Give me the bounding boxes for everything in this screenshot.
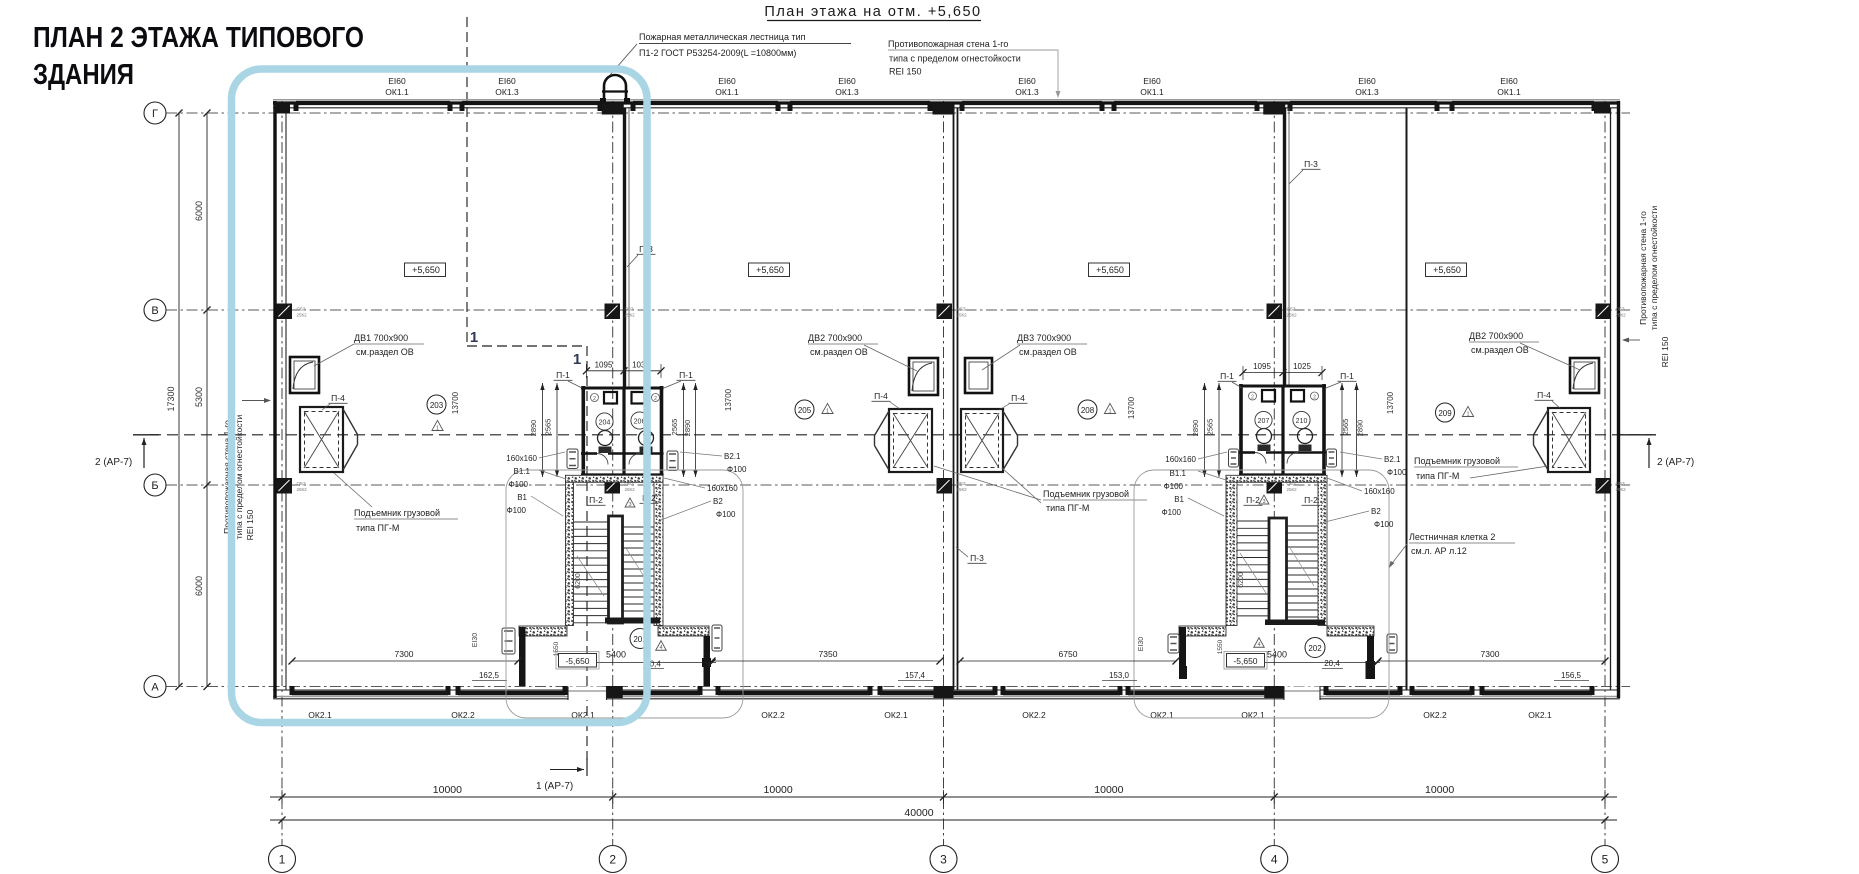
- svg-text:В1.1: В1.1: [514, 467, 531, 476]
- svg-text:1: 1: [470, 329, 478, 346]
- svg-text:Подъемник грузовой: Подъемник грузовой: [1043, 489, 1129, 499]
- svg-text:ОК2.1: ОК2.1: [1528, 710, 1552, 720]
- svg-text:ОК1.1: ОК1.1: [1140, 87, 1164, 97]
- svg-text:5300: 5300: [194, 387, 204, 407]
- svg-text:5400: 5400: [1267, 650, 1287, 660]
- svg-text:см.раздел ОВ: см.раздел ОВ: [810, 347, 868, 357]
- svg-text:162,5: 162,5: [479, 671, 500, 680]
- svg-text:типа с пределом огнестойкости: типа с пределом огнестойкости: [889, 54, 1021, 64]
- svg-text:ЗДАНИЯ: ЗДАНИЯ: [33, 59, 134, 91]
- svg-text:2: 2: [593, 396, 596, 402]
- svg-text:ОБЗ: ОБЗ: [297, 481, 306, 486]
- svg-text:25К2: 25К2: [1616, 487, 1627, 492]
- svg-text:Г: Г: [152, 108, 158, 120]
- svg-text:EI60: EI60: [1358, 76, 1376, 86]
- svg-text:В2: В2: [713, 497, 723, 506]
- svg-text:2890: 2890: [683, 420, 692, 437]
- svg-text:В1: В1: [517, 493, 527, 502]
- svg-text:2565: 2565: [544, 419, 553, 436]
- svg-text:П-3: П-3: [970, 553, 984, 563]
- svg-text:ПЛАН 2 ЭТАЖА ТИПОВОГО: ПЛАН 2 ЭТАЖА ТИПОВОГО: [33, 22, 364, 54]
- svg-text:2890: 2890: [529, 420, 538, 437]
- svg-text:П-3: П-3: [1304, 159, 1318, 169]
- svg-text:см.л. АР л.12: см.л. АР л.12: [1411, 546, 1467, 556]
- svg-text:ОБЗ: ОБЗ: [625, 307, 634, 312]
- svg-text:ОБЗ: ОБЗ: [1616, 307, 1625, 312]
- svg-text:ОК2.1: ОК2.1: [571, 710, 595, 720]
- svg-text:ДВ3 700x900: ДВ3 700x900: [1017, 333, 1071, 343]
- svg-text:6200: 6200: [575, 573, 582, 589]
- svg-text:25К2: 25К2: [957, 313, 968, 318]
- svg-text:2: 2: [654, 396, 657, 402]
- svg-text:2: 2: [609, 853, 616, 867]
- svg-text:REI 150: REI 150: [889, 67, 922, 77]
- svg-text:EI60: EI60: [1018, 76, 1036, 86]
- svg-text:160x160: 160x160: [506, 454, 537, 463]
- svg-text:6200: 6200: [1238, 572, 1245, 588]
- svg-text:25К2: 25К2: [297, 313, 308, 318]
- svg-text:+5,650: +5,650: [412, 265, 440, 275]
- svg-text:П-4: П-4: [874, 391, 888, 401]
- svg-text:Лестничная клетка 2: Лестничная клетка 2: [1409, 532, 1495, 542]
- svg-text:25К2: 25К2: [957, 487, 968, 492]
- svg-text:10000: 10000: [764, 784, 793, 796]
- svg-text:2565: 2565: [1341, 419, 1350, 436]
- svg-text:EI60: EI60: [838, 76, 856, 86]
- svg-text:Ф100: Ф100: [1374, 520, 1394, 529]
- svg-text:П-1: П-1: [556, 370, 570, 380]
- svg-text:ЕІ30: ЕІ30: [1138, 637, 1145, 652]
- svg-text:ОБЗ: ОБЗ: [1616, 481, 1625, 486]
- svg-text:210: 210: [1296, 418, 1308, 425]
- svg-text:Пожарная металлическая лестниц: Пожарная металлическая лестница тип: [639, 32, 806, 42]
- svg-text:160x160: 160x160: [1364, 487, 1395, 496]
- svg-text:Б: Б: [151, 480, 158, 492]
- svg-text:13700: 13700: [451, 391, 460, 414]
- svg-text:REI 150: REI 150: [245, 509, 255, 540]
- svg-text:ОК1.3: ОК1.3: [1015, 87, 1039, 97]
- svg-text:156,5: 156,5: [1561, 671, 1582, 680]
- svg-text:6000: 6000: [194, 576, 204, 596]
- svg-text:П-4: П-4: [331, 393, 345, 403]
- svg-text:ОБЗ: ОБЗ: [957, 481, 966, 486]
- svg-text:2890: 2890: [1191, 420, 1200, 437]
- svg-text:204: 204: [599, 420, 611, 427]
- svg-text:25К2: 25К2: [625, 313, 636, 318]
- svg-text:Ф100: Ф100: [509, 480, 529, 489]
- svg-text:ЕІ30: ЕІ30: [472, 633, 479, 648]
- svg-text:Ф100: Ф100: [507, 506, 527, 515]
- svg-text:3: 3: [628, 502, 631, 508]
- svg-text:П-1: П-1: [1340, 371, 1354, 381]
- svg-text:Ф100: Ф100: [716, 510, 736, 519]
- svg-text:40000: 40000: [904, 807, 933, 819]
- svg-text:П-2: П-2: [589, 495, 603, 505]
- svg-text:25К2: 25К2: [1287, 313, 1298, 318]
- svg-text:ОБЗ: ОБЗ: [1287, 307, 1296, 312]
- svg-text:ОК1.3: ОК1.3: [835, 87, 859, 97]
- svg-text:2565: 2565: [1206, 419, 1215, 436]
- svg-text:см.раздел ОВ: см.раздел ОВ: [356, 347, 414, 357]
- svg-text:Противопожарная стена 1-го: Противопожарная стена 1-го: [888, 39, 1008, 49]
- svg-text:+5,650: +5,650: [1096, 265, 1124, 275]
- svg-text:REI 150: REI 150: [1660, 336, 1670, 367]
- svg-text:2890: 2890: [1356, 420, 1365, 437]
- svg-text:10000: 10000: [1425, 784, 1454, 796]
- svg-text:1: 1: [826, 408, 829, 414]
- svg-text:П1-2 ГОСТ Р53254-2009(L =10800: П1-2 ГОСТ Р53254-2009(L =10800мм): [639, 48, 796, 58]
- svg-text:5400: 5400: [606, 650, 626, 660]
- svg-text:1 (АР-7): 1 (АР-7): [536, 781, 573, 792]
- svg-text:ОК2.2: ОК2.2: [761, 710, 785, 720]
- svg-text:П-1: П-1: [679, 370, 693, 380]
- svg-text:208: 208: [1081, 406, 1095, 415]
- svg-text:В2.1: В2.1: [724, 452, 741, 461]
- svg-text:10000: 10000: [433, 784, 462, 796]
- svg-text:Ф100: Ф100: [727, 465, 747, 474]
- svg-text:17300: 17300: [166, 386, 176, 411]
- svg-text:202: 202: [1308, 644, 1322, 653]
- svg-text:1: 1: [573, 351, 581, 368]
- svg-text:2: 2: [1313, 394, 1316, 400]
- svg-text:П-2: П-2: [1304, 495, 1318, 505]
- svg-text:4: 4: [1257, 642, 1260, 648]
- svg-text:EI60: EI60: [1500, 76, 1518, 86]
- svg-text:ОБЗ: ОБЗ: [297, 307, 306, 312]
- svg-text:1550: 1550: [1217, 639, 1224, 654]
- svg-text:П-4: П-4: [1011, 393, 1025, 403]
- svg-text:10000: 10000: [1094, 784, 1123, 796]
- svg-text:1: 1: [436, 425, 439, 431]
- svg-text:В2: В2: [1371, 507, 1381, 516]
- svg-text:ДВ2 700x900: ДВ2 700x900: [1469, 331, 1523, 341]
- svg-text:2 (АР-7): 2 (АР-7): [95, 457, 132, 468]
- svg-text:ОК2.1: ОК2.1: [1150, 710, 1174, 720]
- svg-text:160x160: 160x160: [707, 484, 738, 493]
- svg-text:типа ПГ-М: типа ПГ-М: [1416, 471, 1459, 481]
- svg-text:1095: 1095: [1253, 362, 1271, 371]
- svg-text:2 (АР-7): 2 (АР-7): [1657, 457, 1694, 468]
- svg-text:EI60: EI60: [1143, 76, 1161, 86]
- svg-text:3: 3: [1262, 499, 1265, 505]
- svg-text:4: 4: [659, 645, 662, 651]
- svg-text:1: 1: [279, 853, 286, 867]
- svg-text:В: В: [151, 305, 158, 317]
- svg-text:6750: 6750: [1059, 649, 1078, 659]
- svg-text:1095: 1095: [595, 360, 613, 369]
- svg-text:Противопожарная стена 1-го: Противопожарная стена 1-го: [1638, 211, 1648, 325]
- svg-text:типа ПГ-М: типа ПГ-М: [356, 523, 399, 533]
- svg-text:13700: 13700: [724, 388, 733, 411]
- svg-text:+5,650: +5,650: [1433, 265, 1461, 275]
- svg-text:6000: 6000: [194, 201, 204, 221]
- svg-text:5: 5: [1602, 853, 1609, 867]
- svg-text:Ф100: Ф100: [1162, 508, 1182, 517]
- svg-text:25К2: 25К2: [625, 487, 636, 492]
- svg-text:План этажа на отм. +5,650: План этажа на отм. +5,650: [764, 4, 981, 20]
- svg-text:П-2: П-2: [1246, 495, 1260, 505]
- svg-text:2: 2: [1251, 394, 1254, 400]
- svg-text:13700: 13700: [1386, 391, 1395, 414]
- svg-text:ОК2.1: ОК2.1: [1241, 710, 1265, 720]
- svg-text:ОК2.2: ОК2.2: [1423, 710, 1447, 720]
- svg-text:3: 3: [940, 853, 947, 867]
- svg-text:Подъемник грузовой: Подъемник грузовой: [1414, 456, 1500, 466]
- svg-text:1: 1: [1108, 408, 1111, 414]
- svg-text:1025: 1025: [1293, 362, 1311, 371]
- svg-text:ОК1.1: ОК1.1: [715, 87, 739, 97]
- svg-text:EI60: EI60: [498, 76, 516, 86]
- svg-text:7300: 7300: [395, 649, 414, 659]
- svg-text:В1: В1: [1174, 495, 1184, 504]
- svg-text:типа с пределом огнестойкости: типа с пределом огнестойкости: [1649, 206, 1659, 331]
- svg-text:-5,650: -5,650: [1233, 656, 1257, 666]
- svg-text:А: А: [151, 682, 159, 694]
- svg-text:7350: 7350: [819, 649, 838, 659]
- svg-text:Подъемник грузовой: Подъемник грузовой: [354, 508, 440, 518]
- svg-text:209: 209: [1438, 409, 1452, 418]
- svg-text:ОБЗ: ОБЗ: [957, 307, 966, 312]
- svg-text:ОК2.2: ОК2.2: [1022, 710, 1046, 720]
- svg-text:П-1: П-1: [1220, 371, 1234, 381]
- svg-text:-5,650: -5,650: [565, 656, 589, 666]
- svg-text:Ф100: Ф100: [1164, 482, 1184, 491]
- svg-text:160x160: 160x160: [1165, 455, 1196, 464]
- svg-text:см.раздел ОВ: см.раздел ОВ: [1471, 345, 1529, 355]
- svg-text:типа ПГ-М: типа ПГ-М: [1046, 503, 1089, 513]
- svg-text:ОК1.3: ОК1.3: [1355, 87, 1379, 97]
- svg-text:ДВ2 700x900: ДВ2 700x900: [808, 333, 862, 343]
- svg-text:см.раздел ОВ: см.раздел ОВ: [1019, 347, 1077, 357]
- svg-text:типа с пределом огнестойкости: типа с пределом огнестойкости: [234, 415, 244, 540]
- svg-text:В2.1: В2.1: [1384, 455, 1401, 464]
- svg-text:205: 205: [798, 406, 812, 415]
- svg-text:П-4: П-4: [1537, 390, 1551, 400]
- svg-text:EI60: EI60: [388, 76, 406, 86]
- svg-text:153,0: 153,0: [1109, 671, 1130, 680]
- svg-text:25К2: 25К2: [1287, 487, 1298, 492]
- svg-text:В1.1: В1.1: [1170, 469, 1187, 478]
- svg-text:ОК2.2: ОК2.2: [451, 710, 475, 720]
- svg-text:25К2: 25К2: [1616, 313, 1627, 318]
- svg-text:13700: 13700: [1127, 396, 1136, 419]
- svg-text:ОК1.1: ОК1.1: [385, 87, 409, 97]
- svg-text:20,4: 20,4: [1324, 659, 1340, 668]
- svg-text:4: 4: [1271, 853, 1278, 867]
- svg-text:ОК2.1: ОК2.1: [884, 710, 908, 720]
- svg-text:ОК1.3: ОК1.3: [495, 87, 519, 97]
- svg-text:7300: 7300: [1481, 649, 1500, 659]
- svg-text:25К2: 25К2: [297, 487, 308, 492]
- svg-text:203: 203: [430, 401, 444, 410]
- svg-text:ОК2.1: ОК2.1: [308, 710, 332, 720]
- svg-text:+5,650: +5,650: [756, 265, 784, 275]
- svg-text:ДВ1 700x900: ДВ1 700x900: [354, 333, 408, 343]
- svg-text:1: 1: [1466, 411, 1469, 417]
- svg-text:2565: 2565: [670, 419, 679, 436]
- svg-text:EI60: EI60: [718, 76, 736, 86]
- svg-text:Ф100: Ф100: [1387, 468, 1407, 477]
- svg-text:207: 207: [1258, 418, 1270, 425]
- svg-text:ОК1.1: ОК1.1: [1497, 87, 1521, 97]
- svg-text:157,4: 157,4: [905, 671, 926, 680]
